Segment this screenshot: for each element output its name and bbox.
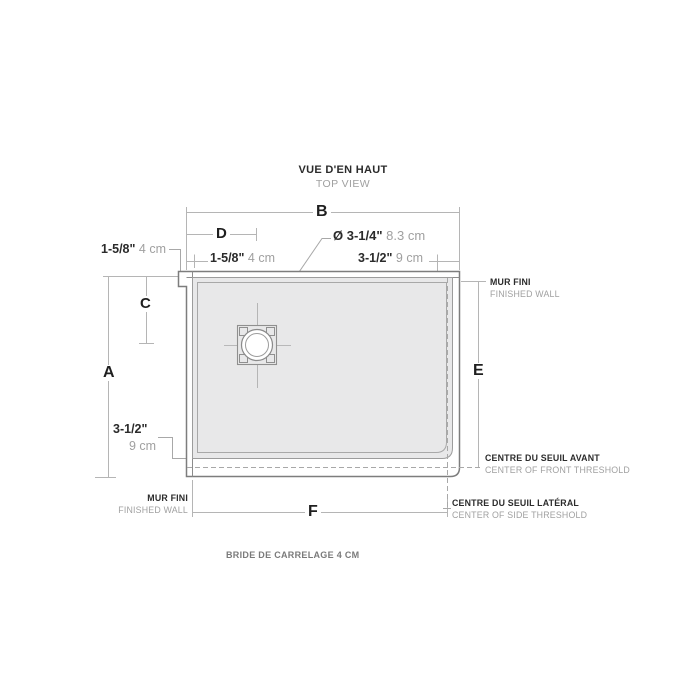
front-threshold-dim-metric: 9 cm — [129, 440, 156, 453]
drawing-canvas — [0, 0, 700, 700]
drain-diameter-imperial: Ø 3-1/4" — [333, 228, 383, 243]
drain-diameter-metric: 8.3 cm — [386, 228, 425, 243]
dim-label-d: D — [213, 226, 230, 242]
left-flange-metric: 4 cm — [139, 242, 166, 256]
view-title-fr: VUE D'EN HAUT — [263, 164, 423, 176]
view-title-en: TOP VIEW — [263, 178, 423, 190]
finished-wall-left-callout: MUR FINI FINISHED WALL — [118, 493, 188, 516]
top-flange-imperial: 1-5/8" — [210, 251, 244, 265]
front-threshold-fr: CENTRE DU SEUIL AVANT — [485, 453, 630, 465]
base-rim-line — [193, 278, 453, 459]
dim-label-e: E — [470, 363, 487, 379]
shower-base — [179, 272, 460, 477]
top-flange-metric: 4 cm — [248, 251, 275, 265]
dim-label-f: F — [305, 504, 321, 520]
front-threshold-callout: CENTRE DU SEUIL AVANT CENTER OF FRONT TH… — [485, 453, 630, 476]
dim-label-b: B — [313, 204, 331, 220]
dim-label-a: A — [100, 365, 118, 381]
left-flange-dim: 1-5/8" 4 cm — [101, 243, 166, 256]
finished-wall-left-en: FINISHED WALL — [118, 505, 188, 517]
side-threshold-dim: 3-1/2" 9 cm — [358, 252, 423, 265]
side-threshold-metric: 9 cm — [396, 251, 423, 265]
front-threshold-en: CENTER OF FRONT THRESHOLD — [485, 465, 630, 477]
finished-wall-right-callout: MUR FINI FINISHED WALL — [490, 277, 560, 300]
front-threshold-dim-imperial: 3-1/2" — [113, 423, 147, 436]
top-flange-dim: 1-5/8" 4 cm — [210, 252, 275, 265]
dim-label-c: C — [137, 296, 154, 312]
finished-wall-right-en: FINISHED WALL — [490, 289, 560, 301]
side-threshold-en: CENTER OF SIDE THRESHOLD — [452, 510, 587, 522]
drain-diameter-dim: Ø 3-1/4" 8.3 cm — [333, 229, 425, 242]
finished-wall-right-fr: MUR FINI — [490, 277, 560, 289]
side-threshold-fr: CENTRE DU SEUIL LATÉRAL — [452, 498, 587, 510]
side-threshold-callout: CENTRE DU SEUIL LATÉRAL CENTER OF SIDE T… — [452, 498, 587, 521]
finished-wall-left-fr: MUR FINI — [118, 493, 188, 505]
left-flange-imperial: 1-5/8" — [101, 242, 135, 256]
tile-flange-clipped-note: BRIDE DE CARRELAGE 4 CM — [226, 550, 359, 558]
technical-drawing-page: VUE D'EN HAUT TOP VIEW B D C A E F 1-5/8… — [0, 0, 700, 700]
side-threshold-imperial: 3-1/2" — [358, 251, 392, 265]
